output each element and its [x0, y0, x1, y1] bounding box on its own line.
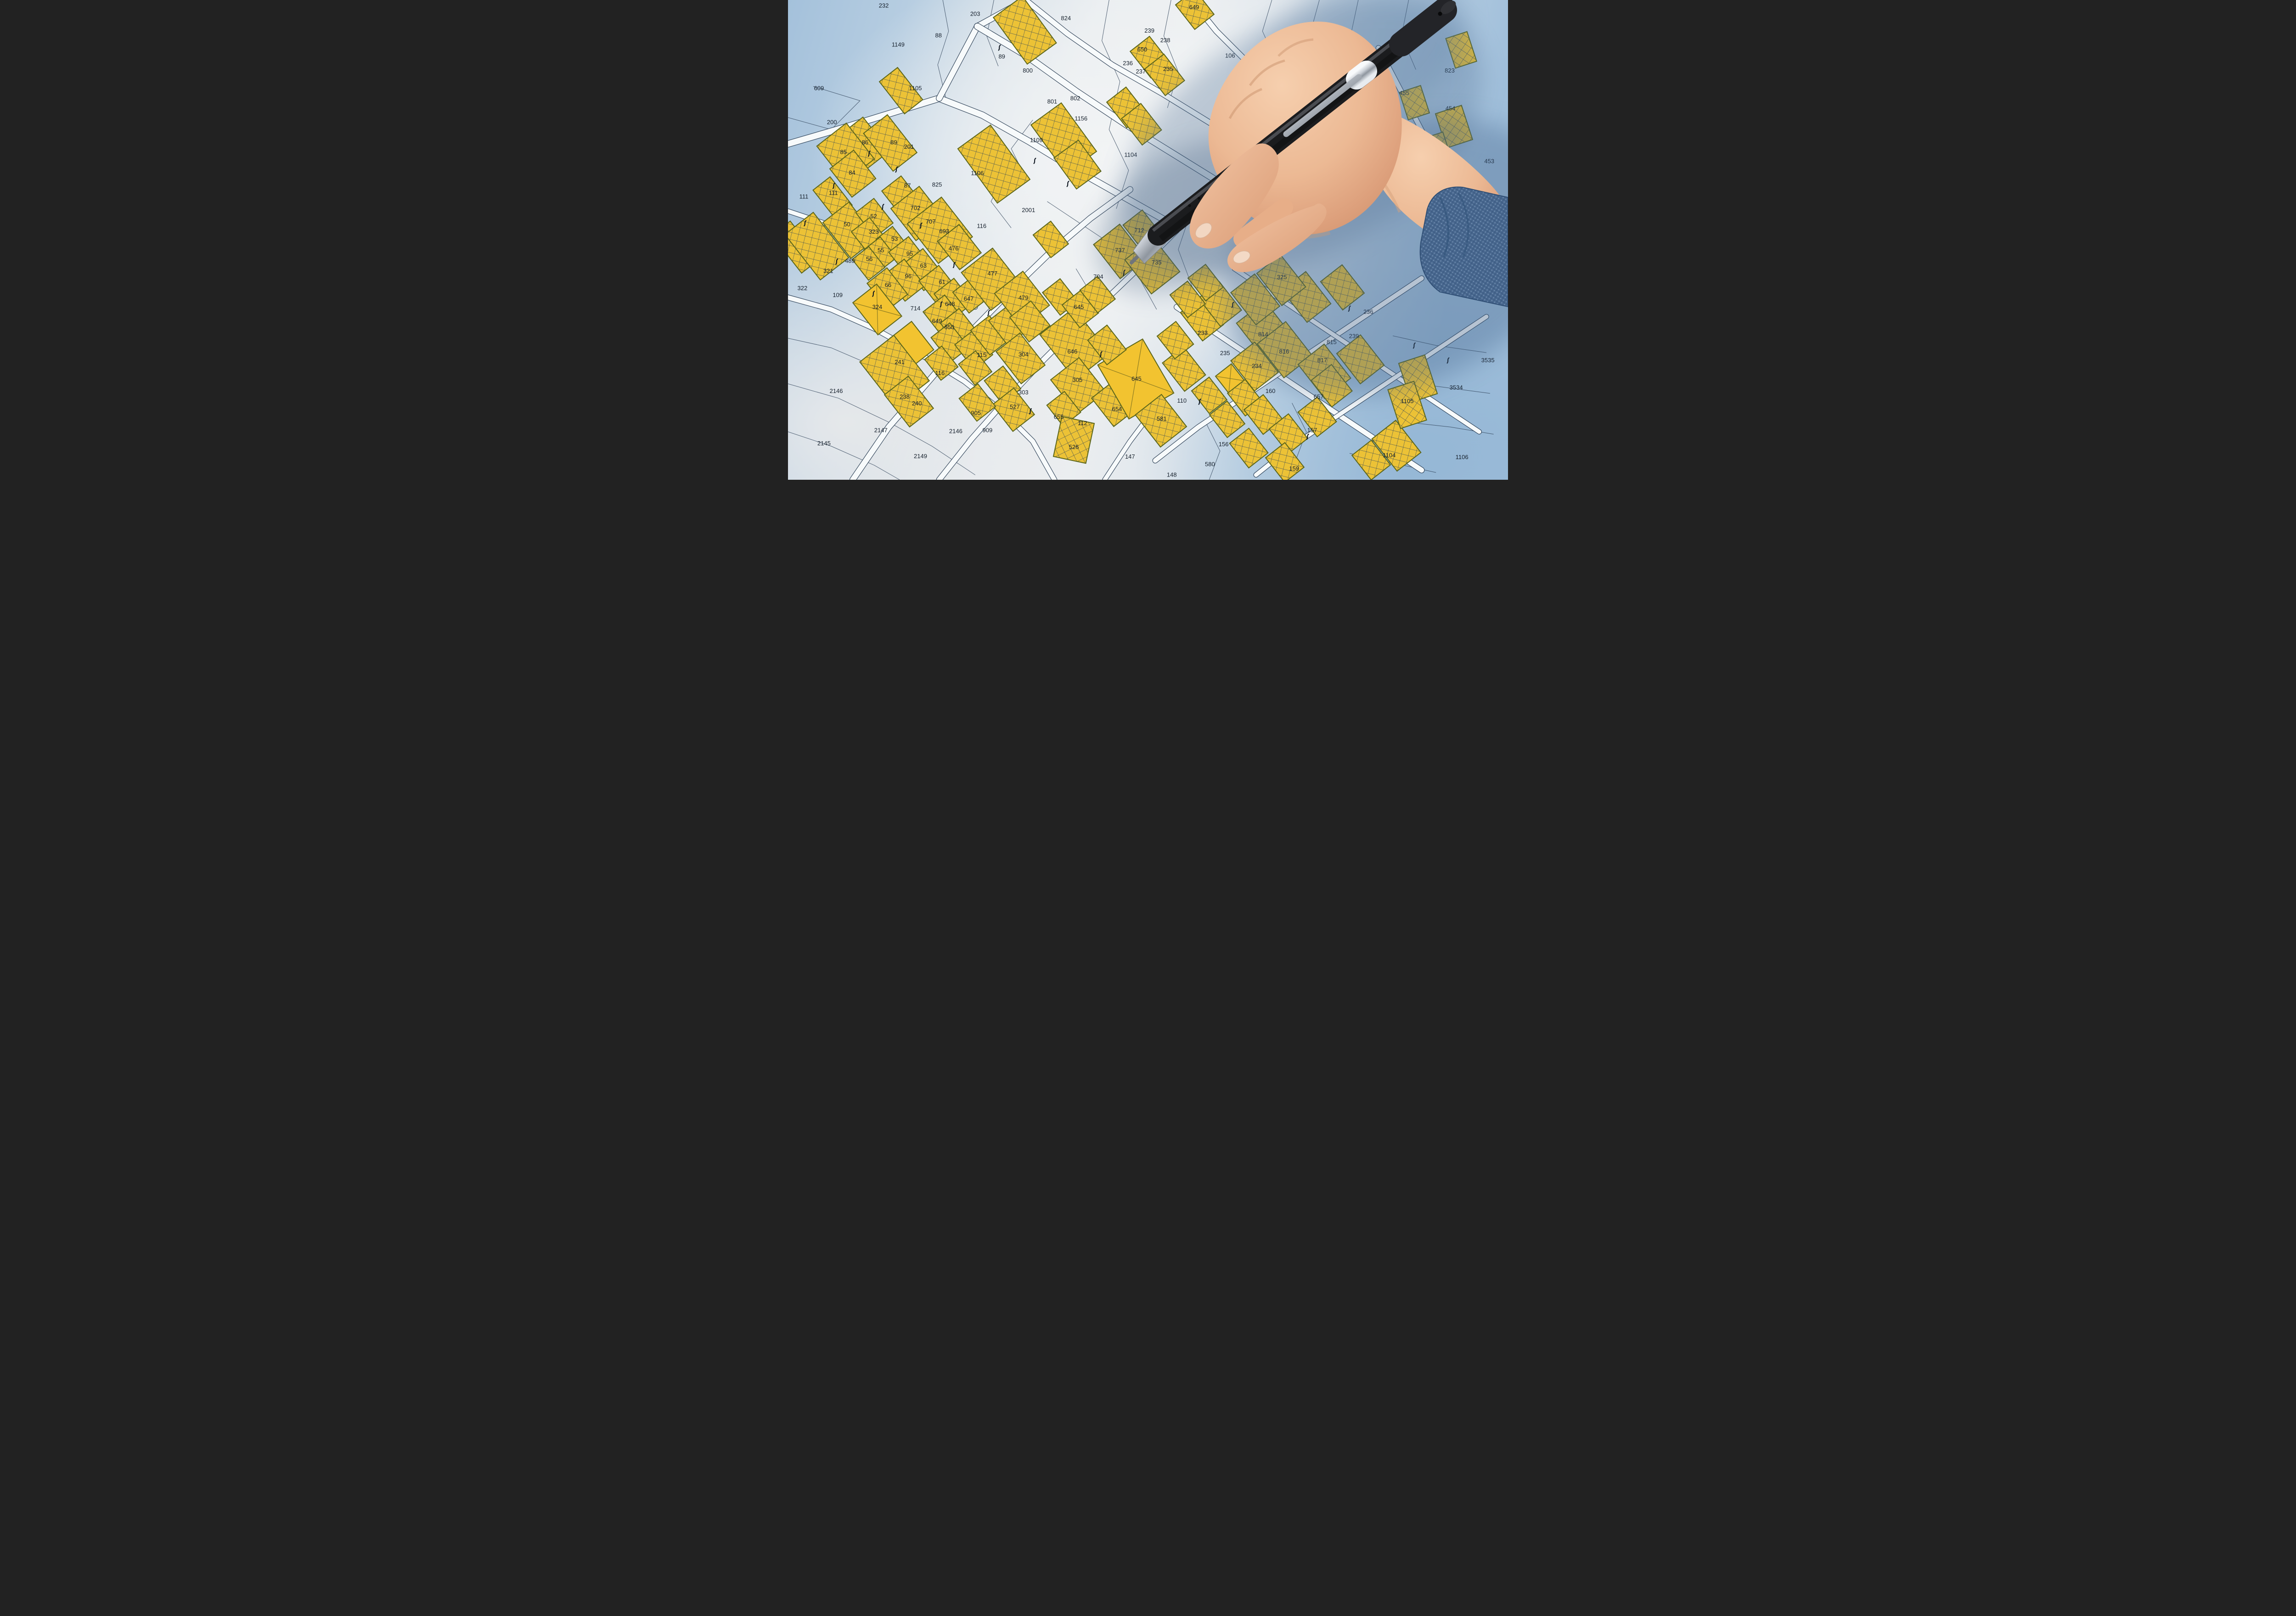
parcel-label: 1149 — [892, 41, 905, 48]
parcel-label: 156 — [1219, 441, 1229, 448]
parcel-label: 2146 — [949, 428, 962, 435]
parcel-label: 52 — [870, 213, 877, 219]
parcel-label: 802 — [1070, 95, 1080, 101]
parcel-label: 2145 — [817, 440, 831, 447]
parcel-label: 303 — [1019, 389, 1029, 396]
parcel-label: 476 — [949, 245, 959, 252]
parcel-label: 654 — [1112, 406, 1122, 413]
parcel-label: 477 — [987, 270, 997, 277]
parcel-label: 479 — [1019, 294, 1029, 301]
parcel-label: 159 — [1289, 465, 1299, 472]
parcel-label: 203 — [970, 10, 980, 17]
parcel-label: 115 — [977, 351, 986, 358]
parcel-label: 200 — [827, 119, 837, 126]
parcel-label: 1104 — [1383, 452, 1396, 459]
parcel-label: 1105 — [1401, 398, 1413, 404]
parcel-label: 148 — [1167, 471, 1177, 478]
cadastral-map-screenshot: 2322038246498811498980023923865023623723… — [788, 0, 1508, 480]
parcel-label: 3535 — [1481, 357, 1495, 364]
parcel-label: 650 — [1137, 46, 1148, 53]
parcel-label: 1109 — [1030, 136, 1043, 143]
parcel-label: 649 — [1189, 4, 1199, 11]
parcel-label: 305 — [1072, 376, 1082, 383]
parcel-label: 239 — [1144, 27, 1154, 34]
parcel-label: 645 — [1131, 376, 1142, 382]
parcel-label: 649 — [932, 317, 942, 324]
parcel-label: 824 — [1061, 15, 1071, 22]
parcel-label: 53 — [891, 236, 898, 242]
parcel-label: 116 — [977, 222, 986, 229]
parcel-label: 66 — [885, 281, 891, 288]
parcel-label: 526 — [1069, 443, 1079, 450]
pencil-cap-hole — [1438, 12, 1442, 16]
parcel-label: 110 — [1177, 397, 1187, 404]
parcel-label: 657 — [1314, 393, 1324, 400]
parcel-label: 650 — [944, 324, 954, 331]
parcel-label: 160 — [1266, 387, 1276, 394]
parcel-label: 322 — [798, 285, 808, 292]
parcel-label: 89 — [890, 139, 897, 146]
parcel-label: 233 — [1198, 329, 1208, 336]
parcel-label: 2001 — [1022, 207, 1035, 213]
parcel-label: 1106 — [1456, 454, 1469, 460]
cadastral-map: 2322038246498811498980023923865023623723… — [788, 0, 1508, 480]
parcel-label: 704 — [1093, 273, 1103, 280]
parcel-label: 647 — [964, 295, 974, 302]
parcel-label: 707 — [926, 218, 936, 225]
parcel-label: 237 — [1136, 68, 1146, 75]
parcel-label: 304 — [1019, 351, 1029, 358]
parcel-label: 61 — [939, 279, 945, 286]
parcel-label: 1106 — [971, 169, 984, 176]
parcel-label: 238 — [1160, 37, 1171, 44]
parcel-label: 157 — [1307, 427, 1317, 434]
parcel-label: 1156 — [1075, 115, 1087, 122]
parcel-label: 527 — [1010, 403, 1020, 410]
parcel-label: 96 — [905, 273, 912, 280]
parcel-label: 116 — [935, 370, 945, 376]
parcel-label: 235 — [1220, 349, 1230, 356]
parcel-label: 238 — [900, 393, 910, 400]
parcel-label: 85 — [840, 148, 847, 155]
parcel-label: 655 — [1054, 413, 1064, 420]
parcel-label: 201 — [904, 143, 914, 150]
parcel-label: 236 — [1123, 60, 1133, 67]
parcel-label: 241 — [895, 359, 905, 365]
parcel-label: 84 — [849, 169, 855, 176]
parcel-label: 240 — [912, 400, 922, 407]
parcel-label: 109 — [833, 292, 843, 298]
parcel-label: 825 — [932, 181, 942, 188]
parcel-label: 111 — [829, 189, 838, 196]
parcel-label: 645 — [1074, 303, 1084, 310]
parcel-label: 323 — [869, 228, 879, 235]
parcel-label: 1105 — [909, 84, 922, 91]
parcel-label: 147 — [1125, 453, 1135, 460]
parcel-label: 3534 — [1450, 384, 1463, 391]
parcel-label: 112 — [1078, 420, 1087, 426]
parcel-label: 702 — [911, 205, 921, 212]
parcel-label: 63 — [920, 262, 927, 269]
parcel-label: 714 — [911, 305, 921, 312]
parcel-label: 646 — [1068, 348, 1078, 355]
parcel-label: 56 — [866, 255, 872, 262]
parcel-label: 87 — [904, 182, 911, 189]
parcel-label: 232 — [879, 2, 889, 9]
parcel-label: 693 — [939, 228, 949, 235]
parcel-label: 111 — [799, 193, 809, 200]
parcel-label: 909 — [982, 427, 992, 434]
parcel-label: 2149 — [914, 453, 927, 460]
parcel-label: 905 — [971, 410, 981, 416]
parcel-label: 88 — [935, 32, 941, 39]
parcel-label: 801 — [1047, 98, 1058, 105]
parcel-label: 50 — [844, 221, 850, 228]
parcel-label: 86 — [862, 139, 868, 146]
parcel-label: 580 — [1205, 461, 1215, 468]
parcel-label: 55 — [878, 247, 884, 254]
parcel-label: 648 — [945, 301, 955, 308]
parcel-label: 2147 — [874, 427, 888, 434]
parcel-label: 581 — [1157, 415, 1167, 422]
parcel-label: 2146 — [830, 387, 843, 394]
parcel-label: 235 — [1163, 66, 1173, 73]
parcel-label: 609 — [814, 84, 824, 91]
parcel-label: 95 — [906, 250, 913, 257]
parcel-label: 489 — [845, 258, 855, 264]
parcel-label: 324 — [872, 303, 883, 310]
parcel-label: 800 — [1023, 67, 1033, 74]
parcel-label: 321 — [823, 268, 833, 275]
parcel-label: 89 — [998, 53, 1005, 60]
